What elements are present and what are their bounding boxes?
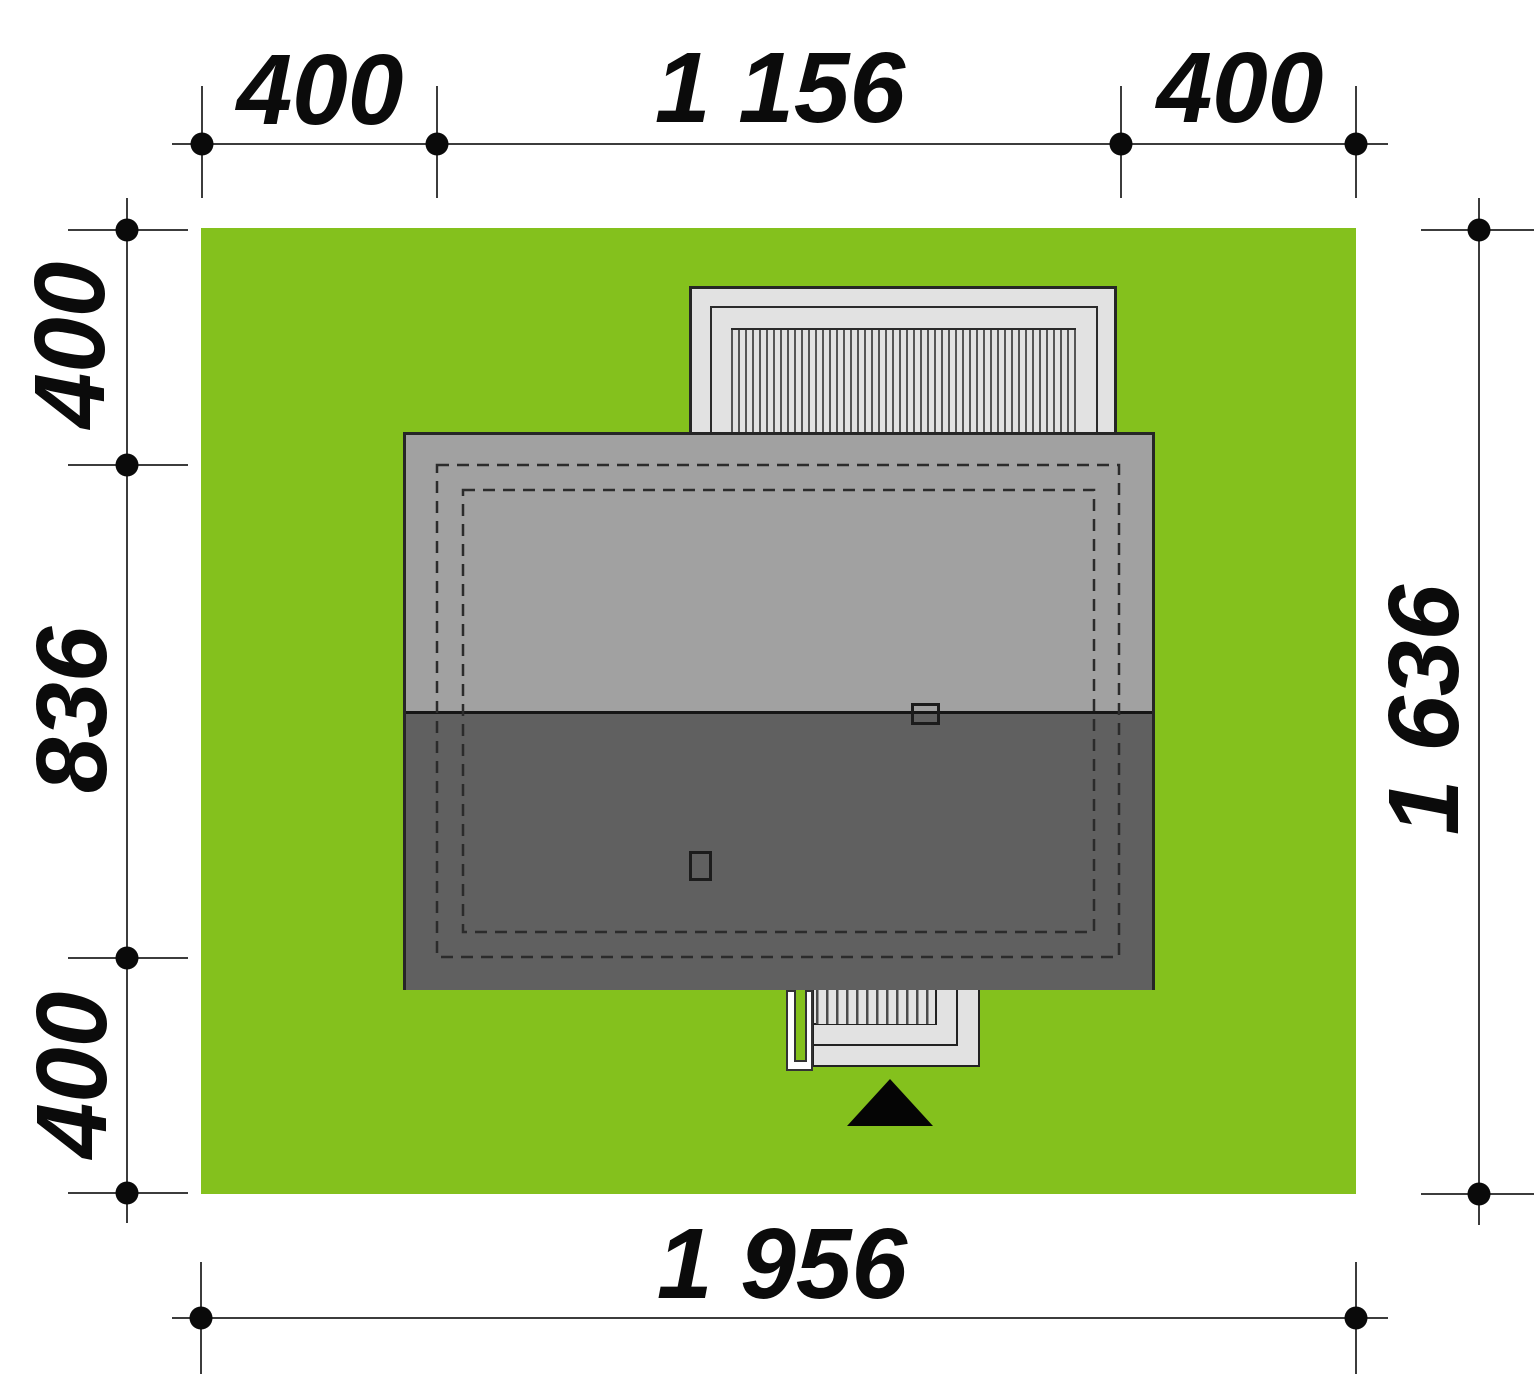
dimension-dot [1345, 133, 1368, 156]
dim-top-right-margin: 400 [1157, 38, 1324, 138]
chimney-1 [911, 703, 940, 725]
entry-ramp-slot [794, 990, 807, 1062]
dimension-dot [1110, 133, 1133, 156]
dim-top-left-margin: 400 [237, 40, 404, 140]
dimension-dot [190, 1307, 213, 1330]
wall-outline-dashed-outer [437, 465, 1119, 957]
entry-ramp [786, 990, 813, 1071]
dimension-dot [1468, 1183, 1491, 1206]
building-outline-dashed [0, 0, 1535, 1399]
dim-right-plot-depth: 1 636 [1374, 585, 1474, 835]
dim-left-bottom-margin: 400 [22, 992, 122, 1159]
dimension-dot [116, 947, 139, 970]
chimney-2 [689, 851, 712, 881]
dimension-dot [116, 454, 139, 477]
dimension-dot [116, 219, 139, 242]
dim-top-building-width: 1 156 [655, 38, 905, 138]
dim-left-building-depth: 836 [22, 627, 122, 794]
dimension-dot [1345, 1307, 1368, 1330]
dim-left-top-margin: 400 [20, 262, 120, 429]
entrance-arrow-icon [847, 1079, 933, 1126]
dimension-dot [191, 133, 214, 156]
dimension-dot [116, 1182, 139, 1205]
dimension-dot [1468, 219, 1491, 242]
wall-outline-dashed-inner [463, 490, 1094, 932]
dimension-dot [426, 133, 449, 156]
site-plan-canvas: 400 1 156 400 400 836 400 1 636 1 956 [0, 0, 1535, 1399]
dim-bottom-plot-width: 1 956 [657, 1214, 907, 1314]
